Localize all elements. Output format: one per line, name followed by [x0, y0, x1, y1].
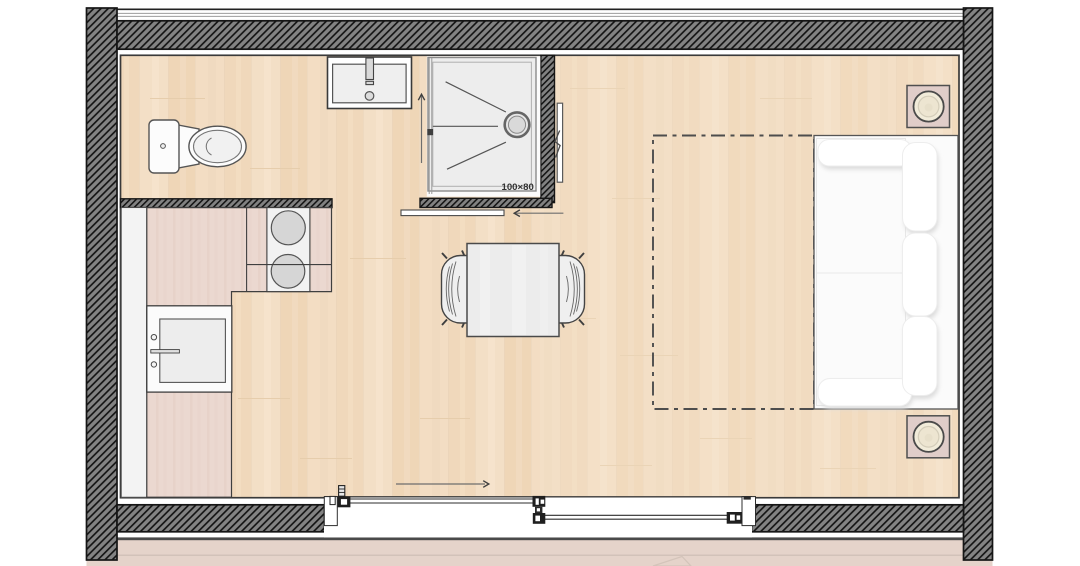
svg-text:100×80: 100×80	[502, 182, 534, 193]
